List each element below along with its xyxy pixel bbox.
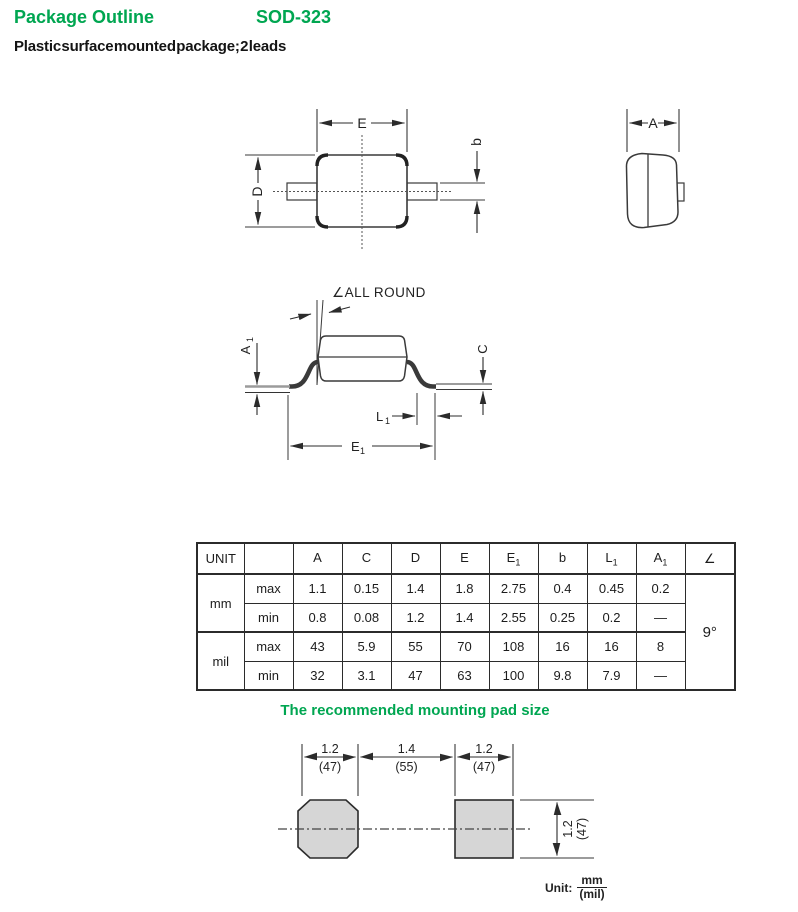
dimension-table: UNIT A C D E E1 b L1 A1 ∠ mm max 1.1 0.1… — [196, 542, 736, 691]
dim-label-E1: E 1 — [351, 439, 365, 456]
svg-text:(55): (55) — [395, 760, 417, 774]
svg-text:1.2: 1.2 — [321, 742, 338, 756]
table-cell: 5.9 — [342, 632, 391, 661]
unit-cell-mm: mm — [197, 574, 244, 632]
dim-label-b: b — [468, 138, 484, 146]
col-header-A: A — [293, 543, 342, 574]
svg-text:A: A — [238, 345, 253, 354]
pad-dim-labels: 1.2 (47) 1.4 (55) 1.2 (47) — [319, 742, 495, 774]
table-cell: 0.15 — [342, 574, 391, 603]
limit-cell: min — [244, 603, 293, 632]
dim-label-L1: L 1 — [376, 409, 390, 426]
datasheet-page: Package Outline SOD-323 Plastic surface … — [0, 0, 798, 912]
col-header-L1: L1 — [587, 543, 636, 574]
svg-text:1.2: 1.2 — [475, 742, 492, 756]
mounting-pad-heading: The recommended mounting pad size — [195, 702, 635, 719]
table-cell: 16 — [538, 632, 587, 661]
draft-angle-arrows — [290, 307, 350, 319]
svg-text:1: 1 — [360, 446, 365, 456]
table-cell: 100 — [489, 661, 538, 690]
svg-text:1.4: 1.4 — [398, 742, 415, 756]
table-cell: 0.2 — [587, 603, 636, 632]
col-header-angle: ∠ — [685, 543, 735, 574]
table-cell: 16 — [587, 632, 636, 661]
table-cell: 47 — [391, 661, 440, 690]
unit-fraction: mm (mil) — [577, 874, 606, 901]
package-subtitle: Plastic surface mounted package; 2 leads — [14, 38, 286, 55]
table-cell: 1.8 — [440, 574, 489, 603]
col-header-A1: A1 — [636, 543, 685, 574]
table-cell: 0.08 — [342, 603, 391, 632]
svg-text:(47): (47) — [473, 760, 495, 774]
unit-denominator: (mil) — [579, 888, 604, 901]
unit-numerator: mm — [577, 874, 606, 888]
unit-cell-mil: mil — [197, 632, 244, 690]
table-cell: 70 — [440, 632, 489, 661]
table-cell: 2.55 — [489, 603, 538, 632]
table-cell: 32 — [293, 661, 342, 690]
dim-C-extension-lines — [436, 384, 492, 390]
col-header-blank — [244, 543, 293, 574]
col-header-unit: UNIT — [197, 543, 244, 574]
angle-value-cell: 9° — [685, 574, 735, 690]
table-cell: 2.75 — [489, 574, 538, 603]
col-header-E: E — [440, 543, 489, 574]
top-view-drawing: E D — [235, 95, 495, 267]
table-cell: 0.8 — [293, 603, 342, 632]
package-name: SOD-323 — [256, 7, 331, 28]
table-cell: 108 — [489, 632, 538, 661]
unit-note-label: Unit: — [545, 881, 572, 895]
table-cell: 43 — [293, 632, 342, 661]
dim-label-E: E — [357, 115, 366, 131]
table-cell: 1.2 — [391, 603, 440, 632]
unit-note: Unit: mm (mil) — [545, 874, 607, 901]
table-cell: — — [636, 603, 685, 632]
table-cell: 55 — [391, 632, 440, 661]
table-cell: 63 — [440, 661, 489, 690]
dim-label-A1: A 1 — [238, 337, 255, 354]
dim-L1-extension-lines — [417, 393, 435, 460]
svg-text:1.2: 1.2 — [561, 820, 575, 837]
table-cell: 1.1 — [293, 574, 342, 603]
limit-cell: max — [244, 632, 293, 661]
table-cell: 0.45 — [587, 574, 636, 603]
table-cell: 0.4 — [538, 574, 587, 603]
all-round-label: ∠ALL ROUND — [332, 285, 426, 300]
col-header-E1: E1 — [489, 543, 538, 574]
dim-label-D: D — [249, 186, 265, 196]
svg-text:(47): (47) — [575, 818, 589, 840]
svg-text:E: E — [351, 439, 360, 454]
table-cell: 3.1 — [342, 661, 391, 690]
table-cell: 0.25 — [538, 603, 587, 632]
package-body-side-view — [626, 154, 678, 228]
table-cell: 7.9 — [587, 661, 636, 690]
svg-text:(47): (47) — [319, 760, 341, 774]
col-header-b: b — [538, 543, 587, 574]
svg-text:L: L — [376, 409, 383, 424]
dim-label-C: C — [475, 344, 490, 353]
limit-cell: max — [244, 574, 293, 603]
side-view-drawing: A — [600, 95, 710, 267]
svg-text:1: 1 — [385, 416, 390, 426]
col-header-D: D — [391, 543, 440, 574]
col-header-C: C — [342, 543, 391, 574]
table-cell: — — [636, 661, 685, 690]
pad-side-dim-labels: 1.2 (47) — [561, 818, 589, 840]
dim-label-A: A — [648, 115, 658, 131]
front-view-drawing: ∠ALL ROUND A 1 C — [230, 273, 520, 473]
svg-text:1: 1 — [245, 337, 255, 342]
package-body-front-view — [318, 336, 407, 381]
table-cell: 1.4 — [391, 574, 440, 603]
table-cell: 8 — [636, 632, 685, 661]
table-cell: 1.4 — [440, 603, 489, 632]
table-cell: 9.8 — [538, 661, 587, 690]
page-title: Package Outline — [14, 7, 154, 28]
limit-cell: min — [244, 661, 293, 690]
table-cell: 0.2 — [636, 574, 685, 603]
